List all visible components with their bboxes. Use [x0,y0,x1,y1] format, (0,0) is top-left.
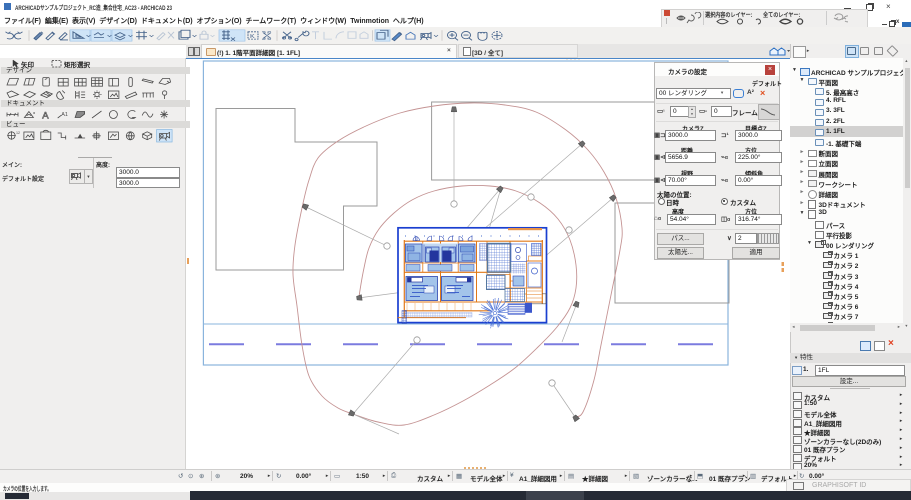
svg-text:A: A [42,111,49,122]
svg-text:12: 12 [16,131,20,135]
svg-text:A1: A1 [61,112,68,118]
svg-text:α: α [33,110,36,115]
svg-text:K: K [250,33,255,39]
